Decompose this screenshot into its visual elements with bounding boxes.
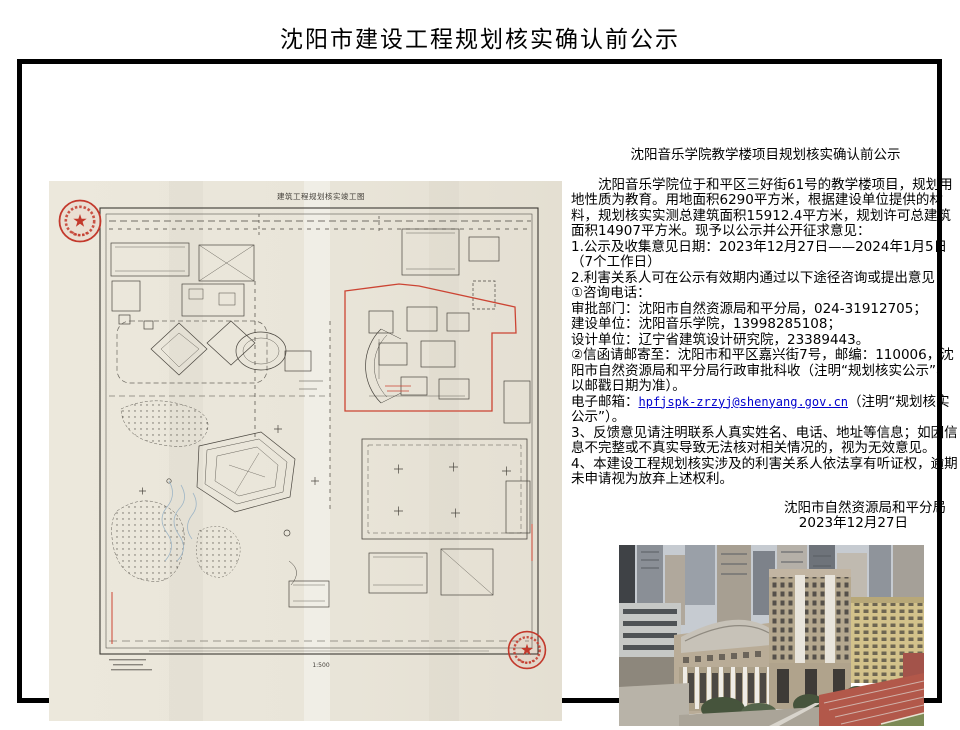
notice-phone-header: ①咨询电话： — [571, 286, 960, 302]
red-seal-bottom — [509, 632, 546, 669]
notice-channels-line: 2.利害关系人可在公示有效期内通过以下途径咨询或提出意见： — [571, 271, 960, 287]
email-label: 电子邮箱： — [571, 394, 639, 410]
signature-agency: 沈阳市自然资源局和平分局 — [571, 501, 960, 517]
notice-mail-line: ②信函请邮寄至：沈阳市和平区嘉兴街7号，邮编：110006，沈阳市自然资源局和平… — [571, 348, 960, 395]
notice-item3: 3、反馈意见请注明联系人真实姓名、电话、地址等信息；如因信息不完整或不真实导致无… — [571, 426, 960, 457]
notice-item4: 4、本建设工程规划核实涉及的利害关系人依法享有听证权，逾期未申请视为放弃上述权利… — [571, 457, 960, 488]
notice-body-paragraph: 沈阳音乐学院位于和平区三好街61号的教学楼项目，规划用地性质为教育。用地面积62… — [571, 178, 960, 240]
site-plan-drawing: 建筑工程规划核实竣工图 — [49, 181, 562, 721]
drawing-scale: 1:500 — [312, 662, 329, 669]
drawing-title: 建筑工程规划核实竣工图 — [277, 191, 365, 201]
notice-phone-builder: 建设单位：沈阳音乐学院，13998285108； — [571, 317, 960, 333]
notice-email-line: 电子邮箱：hpfjspk-zrzyj@shenyang.gov.cn（注明“规划… — [571, 395, 960, 426]
red-seal-top — [60, 201, 101, 242]
signature-block: 沈阳市自然资源局和平分局 2023年12月27日 — [571, 501, 960, 532]
notice-subtitle: 沈阳音乐学院教学楼项目规划核实确认前公示 — [571, 148, 960, 164]
email-link[interactable]: hpfjspk-zrzyj@shenyang.gov.cn — [639, 395, 849, 409]
page-title: 沈阳市建设工程规划核实确认前公示 — [0, 20, 960, 54]
building-photo — [619, 545, 924, 726]
notice-frame: 建筑工程规划核实竣工图 — [17, 59, 942, 703]
notice-text-block: 沈阳音乐学院教学楼项目规划核实确认前公示 沈阳音乐学院位于和平区三好街61号的教… — [571, 148, 960, 532]
notice-date-line: 1.公示及收集意见日期：2023年12月27日——2024年1月5日（7个工作日… — [571, 240, 960, 271]
notice-phone-designer: 设计单位：辽宁省建筑设计研究院，23389443。 — [571, 333, 960, 349]
notice-phone-approval: 审批部门：沈阳市自然资源局和平分局，024-31912705； — [571, 302, 960, 318]
signature-date: 2023年12月27日 — [571, 516, 960, 532]
